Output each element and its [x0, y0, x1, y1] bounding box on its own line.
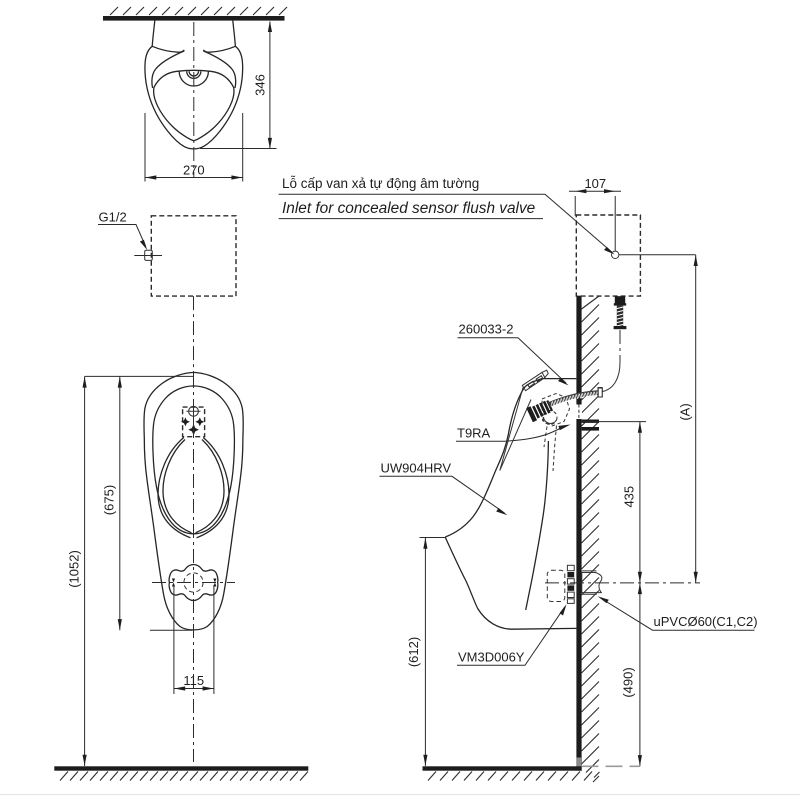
svg-text:G1/2: G1/2: [99, 210, 127, 225]
svg-text:Inlet for concealed sensor flu: Inlet for concealed sensor flush valve: [282, 200, 535, 217]
svg-text:Lỗ cấp van xả tự động âm tường: Lỗ cấp van xả tự động âm tường: [282, 176, 479, 191]
svg-text:T9RA: T9RA: [457, 426, 491, 441]
svg-text:(675): (675): [102, 485, 117, 515]
svg-text:(A): (A): [678, 403, 693, 420]
svg-text:VM3D006Y: VM3D006Y: [458, 650, 525, 665]
svg-text:346: 346: [253, 74, 268, 96]
svg-text:435: 435: [622, 486, 637, 508]
svg-text:270: 270: [183, 163, 205, 178]
svg-text:(490): (490): [621, 667, 636, 697]
svg-text:115: 115: [183, 673, 204, 688]
svg-text:260033-2: 260033-2: [459, 322, 514, 337]
svg-text:107: 107: [584, 176, 606, 191]
svg-text:(1052): (1052): [67, 550, 82, 588]
svg-text:(612): (612): [406, 637, 421, 667]
svg-text:uPVCØ60(C1,C2): uPVCØ60(C1,C2): [654, 614, 758, 629]
svg-text:UW904HRV: UW904HRV: [381, 461, 452, 476]
